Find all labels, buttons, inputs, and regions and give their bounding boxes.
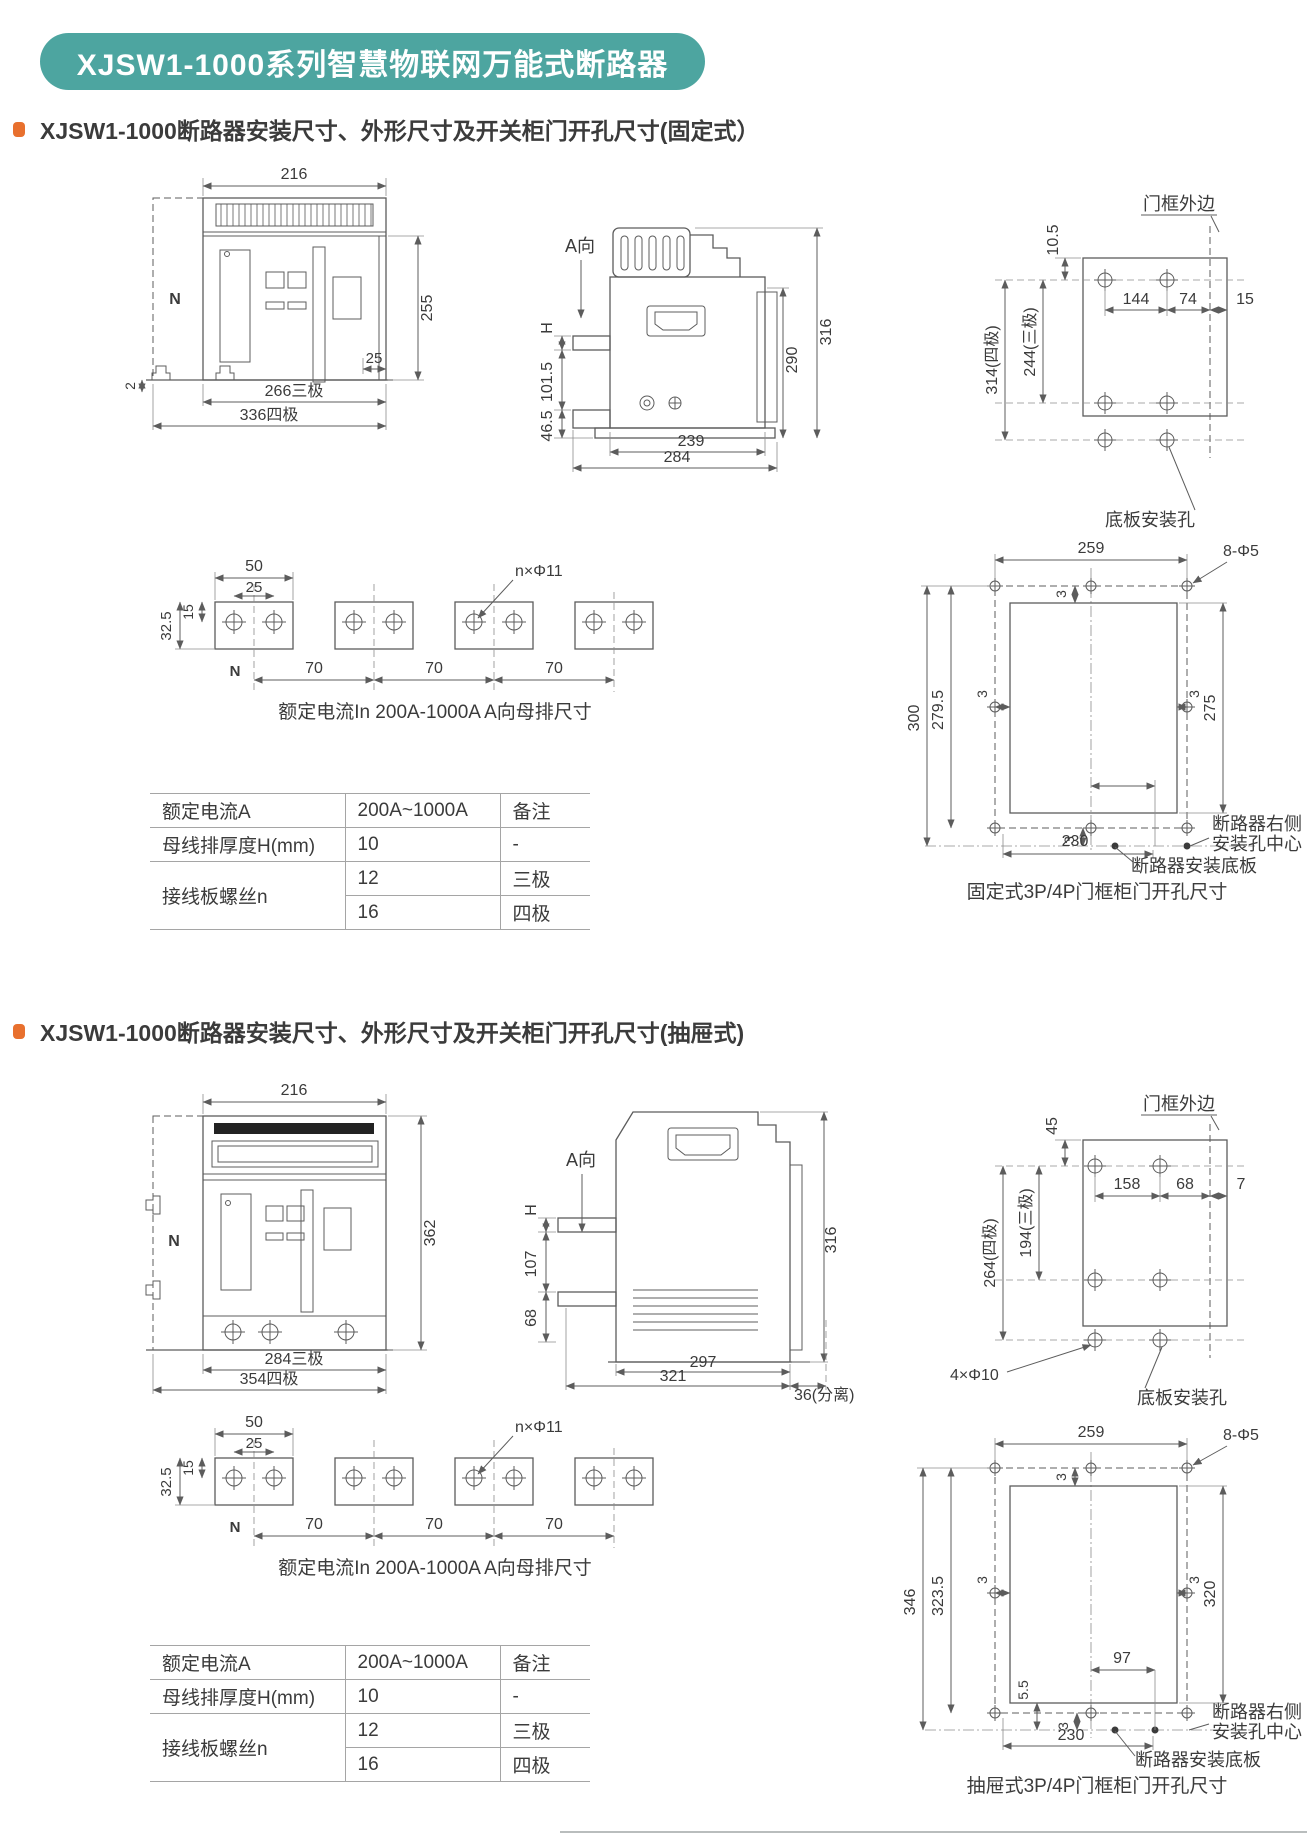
svg-text:336四极: 336四极 (240, 406, 299, 424)
svg-text:3: 3 (1053, 590, 1069, 598)
fixed-front-view-drawing: 216 N 255 25 (128, 162, 463, 477)
table-row: 母线排厚度H(mm) 10 - (150, 828, 590, 862)
svg-text:断路器右侧: 断路器右侧 (1212, 1702, 1302, 1722)
svg-text:25: 25 (246, 579, 263, 596)
drawer-frame-holes-svg: 门框外边 158 68 7 45 194(三极) (855, 1088, 1295, 1410)
side-bottom-dims: 239 284 (573, 430, 777, 472)
table-row: 额定电流A 200A~1000A 备注 (150, 794, 590, 828)
svg-text:321: 321 (660, 1368, 687, 1385)
svg-text:144: 144 (1123, 291, 1150, 308)
svg-text:158: 158 (1114, 1176, 1141, 1193)
table-row: 接线板螺丝n 12 三极 (150, 862, 590, 896)
svg-text:314(四极): 314(四极) (983, 325, 1001, 394)
svg-text:门框外边: 门框外边 (1143, 194, 1215, 214)
busbar-caption: 额定电流In 200A-1000A A向母排尺寸 (278, 1557, 592, 1579)
doorframe-edge-label: 门框外边 (1141, 194, 1219, 458)
busbar-dims: 50 25 15 32.5 n×Φ11 (158, 1414, 563, 1505)
svg-text:70: 70 (425, 1516, 443, 1533)
svg-text:230: 230 (1058, 1727, 1085, 1744)
svg-text:259: 259 (1078, 540, 1105, 557)
svg-text:3: 3 (974, 1576, 990, 1584)
side-left-dims: H 107 68 (523, 1204, 556, 1342)
svg-text:n×Φ11: n×Φ11 (515, 1419, 563, 1436)
svg-text:68: 68 (1176, 1176, 1194, 1193)
svg-text:216: 216 (281, 1082, 308, 1099)
drawer-spec-table: 额定电流A 200A~1000A 备注 母线排厚度H(mm) 10 - 接线板螺… (150, 1645, 590, 1782)
svg-text:46.5: 46.5 (539, 410, 556, 441)
drawer-front-view-drawing: 216 N 362 2 (128, 1078, 468, 1401)
orange-bullet-icon (13, 1024, 25, 1039)
svg-text:8-Φ5: 8-Φ5 (1223, 1427, 1259, 1444)
svg-text:320: 320 (1202, 1581, 1219, 1608)
svg-text:10.5: 10.5 (1045, 224, 1062, 255)
svg-text:4×Φ10: 4×Φ10 (950, 1367, 999, 1384)
drawer-cutout-svg: 259 8-Φ5 3 3 3 3 346 323.5 (775, 1418, 1305, 1796)
section2-heading-text: XJSW1-1000断路器安装尺寸、外形尺寸及开关柜门开孔尺寸(抽屉式) (40, 1014, 744, 1048)
fixed-front-view-svg: 216 N 255 25 (128, 162, 463, 472)
svg-text:15: 15 (180, 604, 196, 620)
fixed-spec-table: 额定电流A 200A~1000A 备注 母线排厚度H(mm) 10 - 接线板螺… (150, 793, 590, 930)
svg-text:230: 230 (1062, 833, 1089, 850)
svg-text:32.5: 32.5 (158, 1467, 175, 1496)
svg-text:70: 70 (425, 660, 443, 677)
fixed-busbar-svg: 50 25 15 32.5 n×Φ11 70 70 70 N 额定电流In 20… (135, 552, 665, 732)
fixed-cutout-svg: 259 8-Φ5 3 3 3 3 300 279.5 (775, 528, 1305, 903)
svg-text:7: 7 (1237, 1176, 1246, 1193)
doorframe-edge-label: 门框外边 (1141, 1094, 1219, 1358)
svg-text:3: 3 (1053, 1473, 1069, 1481)
busbar-pitch-dims: 70 70 70 N (230, 1516, 614, 1536)
svg-text:300: 300 (906, 705, 923, 732)
fixed-side-view-drawing: A向 H 101.5 46.5 (455, 160, 845, 477)
svg-text:239: 239 (678, 433, 705, 450)
svg-text:45: 45 (1044, 1117, 1061, 1135)
svg-text:316: 316 (818, 319, 835, 346)
svg-text:A向: A向 (565, 236, 595, 256)
svg-text:97: 97 (1113, 1650, 1131, 1667)
front-dim-216: 216 (203, 1082, 386, 1114)
side-right-dim-316: 316 (760, 1112, 840, 1362)
neutral-pole-dashed: N (146, 1116, 203, 1350)
svg-text:25: 25 (366, 350, 383, 367)
svg-text:68: 68 (523, 1309, 540, 1327)
side-left-dims: H 101.5 46.5 (539, 322, 593, 441)
busbar-pitch-dims: 70 70 70 N (230, 660, 614, 680)
fixed-frame-holes-drawing: 门框外边 144 74 15 10.5 244(三极) (855, 158, 1295, 538)
svg-text:101.5: 101.5 (539, 362, 556, 402)
cutout-bottom: 5.5 97 230 断路器右侧 安装孔中心 断路器安装底板 (925, 1650, 1302, 1770)
svg-text:297: 297 (690, 1354, 717, 1371)
svg-text:3: 3 (1186, 1576, 1202, 1584)
svg-text:264(四极): 264(四极) (981, 1218, 999, 1287)
drawer-cutout-drawing: 259 8-Φ5 3 3 3 3 346 323.5 (775, 1418, 1305, 1801)
svg-text:25: 25 (246, 1435, 263, 1452)
svg-text:H: H (523, 1204, 540, 1216)
svg-text:断路器安装底板: 断路器安装底板 (1131, 856, 1257, 876)
fixed-frame-holes-svg: 门框外边 144 74 15 10.5 244(三极) (855, 158, 1295, 533)
svg-text:50: 50 (245, 558, 263, 575)
svg-text:74: 74 (1179, 291, 1197, 308)
drawer-side-view-svg: A向 H 107 68 316 (458, 1080, 848, 1398)
svg-text:门框外边: 门框外边 (1143, 1094, 1215, 1114)
svg-text:259: 259 (1078, 1424, 1105, 1441)
svg-text:316: 316 (823, 1227, 840, 1254)
svg-text:323.5: 323.5 (930, 1576, 947, 1616)
svg-text:70: 70 (305, 1516, 323, 1533)
svg-text:底板安装孔: 底板安装孔 (1137, 1388, 1227, 1408)
busbar-dims: 50 25 15 32.5 n×Φ11 (158, 558, 563, 649)
a-direction-arrow: A向 (565, 236, 595, 318)
frame-v-dims: 10.5 244(三极) 314(四极) (983, 224, 1081, 440)
svg-text:底板安装孔: 底板安装孔 (1105, 510, 1195, 530)
svg-text:50: 50 (245, 1414, 263, 1431)
fixed-cutout-caption: 固定式3P/4P门框柜门开孔尺寸 (967, 881, 1228, 903)
front-dim-255: 255 (388, 236, 436, 380)
svg-text:15: 15 (180, 1460, 196, 1476)
table-row: 额定电流A 200A~1000A 备注 (150, 1646, 590, 1680)
svg-text:275: 275 (1202, 695, 1219, 722)
svg-text:32.5: 32.5 (158, 611, 175, 640)
fixed-busbar-drawing: 50 25 15 32.5 n×Φ11 70 70 70 N 额定电流In 20… (135, 552, 665, 737)
cutout-small-offsets: 3 3 3 3 (974, 586, 1202, 846)
svg-text:N: N (169, 291, 181, 308)
svg-text:N: N (168, 1233, 180, 1250)
neutral-pole-dashed: N (153, 198, 203, 380)
svg-text:H: H (539, 322, 556, 334)
fixed-side-view-svg: A向 H 101.5 46.5 (455, 160, 845, 472)
svg-text:346: 346 (902, 1589, 919, 1616)
svg-text:36(分离): 36(分离) (794, 1386, 854, 1404)
svg-text:5.5: 5.5 (1015, 1680, 1031, 1700)
svg-text:244(三极): 244(三极) (1021, 307, 1039, 376)
frame-h-dims: 144 74 15 (1105, 288, 1254, 316)
cutout-small-offsets: 3 3 3 3 (974, 1468, 1202, 1730)
svg-text:70: 70 (545, 1516, 563, 1533)
front-dim-362: 362 (388, 1116, 439, 1350)
breaker-front-outline (203, 198, 386, 382)
svg-text:8-Φ5: 8-Φ5 (1223, 543, 1259, 560)
busbar-caption: 额定电流In 200A-1000A A向母排尺寸 (278, 701, 592, 723)
svg-text:290: 290 (784, 347, 801, 374)
svg-text:N: N (230, 663, 241, 680)
front-dim-216: 216 (203, 166, 386, 196)
drawer-frame-holes-drawing: 门框外边 158 68 7 45 194(三极) (855, 1088, 1295, 1415)
svg-text:A向: A向 (566, 1150, 596, 1170)
cutout-v-dims: 300 279.5 275 (906, 586, 1227, 846)
drawer-busbar-svg: 50 25 15 32.5 n×Φ11 70 70 70 N 额定电流In 20… (135, 1408, 665, 1588)
svg-text:70: 70 (545, 660, 563, 677)
a-direction-arrow: A向 (566, 1150, 596, 1232)
cutout-v-dims: 346 323.5 320 (902, 1468, 1227, 1730)
svg-text:断路器右侧: 断路器右侧 (1212, 814, 1302, 834)
page-bottom-rule (560, 1831, 1307, 1833)
drawer-side-view-drawing: A向 H 107 68 316 (458, 1080, 848, 1403)
svg-text:354四极: 354四极 (240, 1370, 299, 1388)
front-dim-25: 25 (363, 350, 386, 374)
baseplate-holes-label: 底板安装孔 (1105, 447, 1195, 530)
frame-v-dims: 45 194(三极) 264(四极) (981, 1117, 1081, 1340)
svg-text:2: 2 (122, 382, 138, 390)
mounting-feet (146, 366, 393, 380)
orange-bullet-icon (13, 122, 25, 137)
breaker-side-outline (573, 228, 777, 438)
drawer-front-view-svg: 216 N 362 2 (128, 1078, 468, 1396)
svg-text:284: 284 (664, 449, 691, 466)
table-row: 接线板螺丝n 12 三极 (150, 1714, 590, 1748)
svg-text:362: 362 (422, 1220, 439, 1247)
svg-text:216: 216 (281, 166, 308, 183)
hole-callouts: 4×Φ10 底板安装孔 (950, 1345, 1227, 1408)
svg-text:15: 15 (1236, 291, 1254, 308)
svg-text:断路器安装底板: 断路器安装底板 (1135, 1750, 1261, 1770)
svg-text:N: N (230, 1519, 241, 1536)
svg-text:255: 255 (419, 295, 436, 322)
table-row: 母线排厚度H(mm) 10 - (150, 1680, 590, 1714)
svg-text:284三极: 284三极 (265, 1350, 324, 1368)
drawer-cutout-caption: 抽屉式3P/4P门框柜门开孔尺寸 (967, 1775, 1228, 1797)
svg-text:n×Φ11: n×Φ11 (515, 563, 563, 580)
catalog-page: XJSW1-1000系列智慧物联网万能式断路器 XJSW1-1000断路器安装尺… (0, 0, 1307, 1838)
svg-text:安装孔中心: 安装孔中心 (1212, 1722, 1302, 1742)
svg-text:194(三极): 194(三极) (1017, 1188, 1035, 1257)
svg-text:3: 3 (974, 690, 990, 698)
front-dim-2: 2 (122, 380, 142, 392)
svg-text:安装孔中心: 安装孔中心 (1212, 834, 1302, 854)
svg-text:70: 70 (305, 660, 323, 677)
svg-text:107: 107 (523, 1251, 540, 1278)
svg-text:3: 3 (1186, 690, 1202, 698)
breaker-front-outline (203, 1116, 386, 1350)
svg-text:279.5: 279.5 (930, 690, 947, 730)
drawer-busbar-drawing: 50 25 15 32.5 n×Φ11 70 70 70 N 额定电流In 20… (135, 1408, 665, 1593)
page-title-banner: XJSW1-1000系列智慧物联网万能式断路器 (40, 33, 705, 90)
svg-text:266三极: 266三极 (265, 382, 324, 400)
fixed-cutout-drawing: 259 8-Φ5 3 3 3 3 300 279.5 (775, 528, 1305, 908)
section1-heading: XJSW1-1000断路器安装尺寸、外形尺寸及开关柜门开孔尺寸(固定式） (10, 112, 759, 146)
section2-heading: XJSW1-1000断路器安装尺寸、外形尺寸及开关柜门开孔尺寸(抽屉式) (10, 1014, 744, 1048)
section1-heading-text: XJSW1-1000断路器安装尺寸、外形尺寸及开关柜门开孔尺寸(固定式） (40, 112, 759, 146)
frame-h-dims: 158 68 7 (1095, 1174, 1246, 1202)
